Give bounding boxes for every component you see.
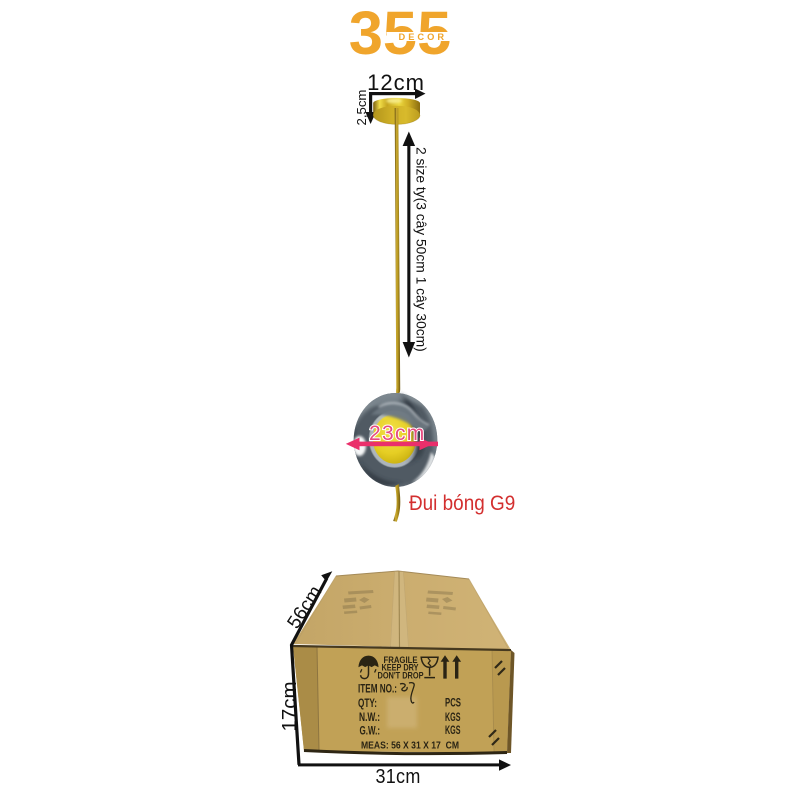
- svg-text:DON'T DROP: DON'T DROP: [378, 671, 424, 681]
- svg-text:2 size ty(3 cây 50cm 1 cây 30c: 2 size ty(3 cây 50cm 1 cây 30cm): [414, 147, 429, 352]
- svg-text:2,5cm: 2,5cm: [354, 90, 369, 126]
- svg-text:Đui bóng G9: Đui bóng G9: [409, 492, 515, 515]
- svg-text:MEAS: 56 X 31 X 17 CM: MEAS: 56 X 31 X 17 CM: [361, 740, 459, 752]
- svg-text:KGS: KGS: [445, 712, 461, 724]
- svg-text:N.W.:: N.W.:: [359, 712, 380, 724]
- svg-text:KGS: KGS: [445, 725, 461, 737]
- svg-text:31cm: 31cm: [376, 766, 421, 788]
- svg-text:23cm: 23cm: [369, 422, 426, 445]
- svg-text:ITEM NO.:: ITEM NO.:: [358, 684, 397, 696]
- svg-text:DECOR: DECOR: [399, 32, 448, 42]
- svg-text:QTY:: QTY:: [358, 698, 377, 710]
- svg-text:PCS: PCS: [445, 698, 461, 710]
- svg-text:G.W.:: G.W.:: [360, 725, 381, 737]
